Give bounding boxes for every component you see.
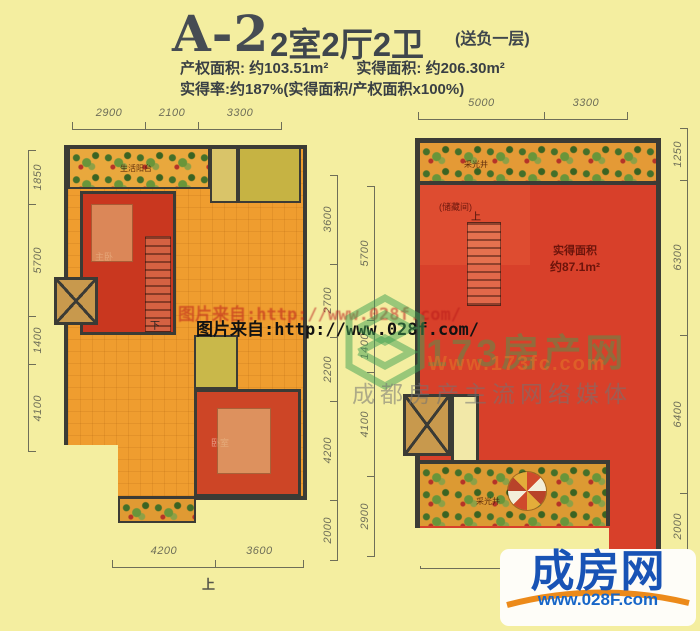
- dim-label: 3300: [573, 97, 599, 109]
- watermark-cube-icon: [345, 294, 425, 395]
- area-line: 产权面积: 约103.51m² 实得面积: 约206.30m²: [180, 57, 505, 78]
- dim-label: 4200: [151, 545, 177, 557]
- dim-segment: 2900: [359, 476, 375, 557]
- stairs-up-label: 上: [471, 208, 481, 223]
- dim-label: 2900: [359, 503, 371, 529]
- rate-line: 实得率:约187%(实得面积/产权面积x100%): [180, 78, 464, 99]
- dim-label: 3600: [322, 206, 334, 232]
- stairs-up: [467, 222, 501, 306]
- stairs-down-label: 下: [150, 317, 160, 332]
- basement-dims-right: 1250630064002000: [672, 128, 688, 560]
- dim-label: 3300: [227, 107, 253, 119]
- dim-segment: 3300: [198, 122, 282, 130]
- bonus-note: (送负一层): [455, 25, 530, 49]
- dim-segment: 2000: [322, 500, 338, 561]
- site-logo: 成房网 www.028F.com: [500, 549, 696, 626]
- dim-label: 4200: [322, 437, 334, 463]
- dim-label: 2100: [159, 107, 185, 119]
- floor1-entry-label: 上: [202, 574, 215, 593]
- basement-dims-top: 50003300: [418, 98, 628, 120]
- dim-segment: 2100: [145, 122, 198, 130]
- dim-segment: 1250: [672, 128, 688, 180]
- bathroom-top: [210, 147, 238, 203]
- property-area: 产权面积: 约103.51m²: [180, 57, 328, 78]
- dim-label: 1400: [32, 327, 44, 353]
- dim-segment: 5700: [359, 186, 375, 320]
- floor1-cutout: [62, 445, 118, 503]
- dim-segment: 3600: [322, 175, 338, 264]
- dim-segment: 5000: [418, 112, 544, 120]
- floor1-dims-right: 36002700220042002000: [322, 175, 338, 561]
- dim-label: 5700: [32, 247, 44, 273]
- kitchen: [238, 147, 301, 203]
- dim-segment: 2200: [322, 337, 338, 401]
- dim-label: 2200: [322, 356, 334, 382]
- dim-segment: 6400: [672, 335, 688, 492]
- actual-area: 实得面积: 约206.30m²: [356, 57, 504, 78]
- umbrella: [508, 472, 546, 510]
- bathroom-mid: [194, 335, 238, 389]
- storage-label: (储藏间): [439, 200, 472, 213]
- lightwell-top-label: 采光井: [464, 159, 488, 170]
- bed-2: [217, 408, 271, 474]
- bed: [91, 204, 133, 262]
- site-logo-name: 成房网: [531, 550, 666, 594]
- dim-label: 1850: [32, 164, 44, 190]
- dim-segment: 4200: [112, 560, 215, 568]
- dim-label: 5700: [359, 240, 371, 266]
- elevator-basement: [403, 394, 451, 456]
- dim-label: 2000: [672, 513, 684, 539]
- dim-label: 2900: [96, 107, 122, 119]
- dim-segment: 1400: [28, 316, 44, 364]
- dim-segment: 4200: [322, 401, 338, 500]
- dim-label: 1400: [359, 333, 371, 359]
- dim-segment: 6300: [672, 180, 688, 335]
- dim-segment: 3600: [215, 560, 304, 568]
- floor1-dims-top: 290021003300: [72, 108, 282, 130]
- dim-label: 5000: [468, 97, 494, 109]
- dim-segment: 1850: [28, 150, 44, 204]
- dim-segment: 1400: [359, 320, 375, 373]
- storage-area-label: 实得面积 约87.1m²: [520, 242, 630, 275]
- dim-segment: 5700: [28, 204, 44, 316]
- lightwell-bottom-label: 采光井: [476, 496, 500, 507]
- basement-plan: 采光井 (储藏间) 上 实得面积 约87.1m² 采光井: [415, 138, 663, 566]
- floor1-dims-left: 1850570014004100: [28, 150, 44, 452]
- dim-segment: 4100: [359, 372, 375, 476]
- dim-label: 6300: [672, 244, 684, 270]
- dim-label: 6400: [672, 401, 684, 427]
- balcony-top: 生活阳台: [68, 147, 210, 189]
- dim-segment: 2700: [322, 264, 338, 337]
- dim-label: 2700: [322, 287, 334, 313]
- floor1-dims-bottom: 42003600: [112, 546, 304, 568]
- bedroom: 卧室: [194, 389, 301, 497]
- balcony-bottom: [118, 497, 196, 523]
- dim-segment: 3300: [544, 112, 628, 120]
- basement-dims-left: 5700140041002900: [359, 186, 375, 557]
- basement-corridor: [451, 394, 479, 468]
- elevator-floor1: [54, 277, 98, 325]
- dim-segment: 2900: [72, 122, 145, 130]
- dim-label: 2000: [322, 517, 334, 543]
- floorplan-poster: A-2 2室2厅2卫 (送负一层) 产权面积: 约103.51m² 实得面积: …: [0, 0, 700, 631]
- lightwell-top: 采光井: [420, 143, 656, 185]
- floor1-plan: 生活阳台 主卧 下 卧室: [62, 145, 307, 527]
- dim-label: 4100: [359, 411, 371, 437]
- dim-label: 4100: [32, 395, 44, 421]
- dim-label: 1250: [672, 141, 684, 167]
- dim-label: 3600: [246, 545, 272, 557]
- lightwell-bottom: 采光井: [420, 460, 610, 526]
- unit-code: A-2: [172, 4, 269, 63]
- dim-segment: 4100: [28, 364, 44, 452]
- site-logo-url: www.028F.com: [538, 590, 658, 610]
- balcony-top-label: 生活阳台: [120, 163, 152, 174]
